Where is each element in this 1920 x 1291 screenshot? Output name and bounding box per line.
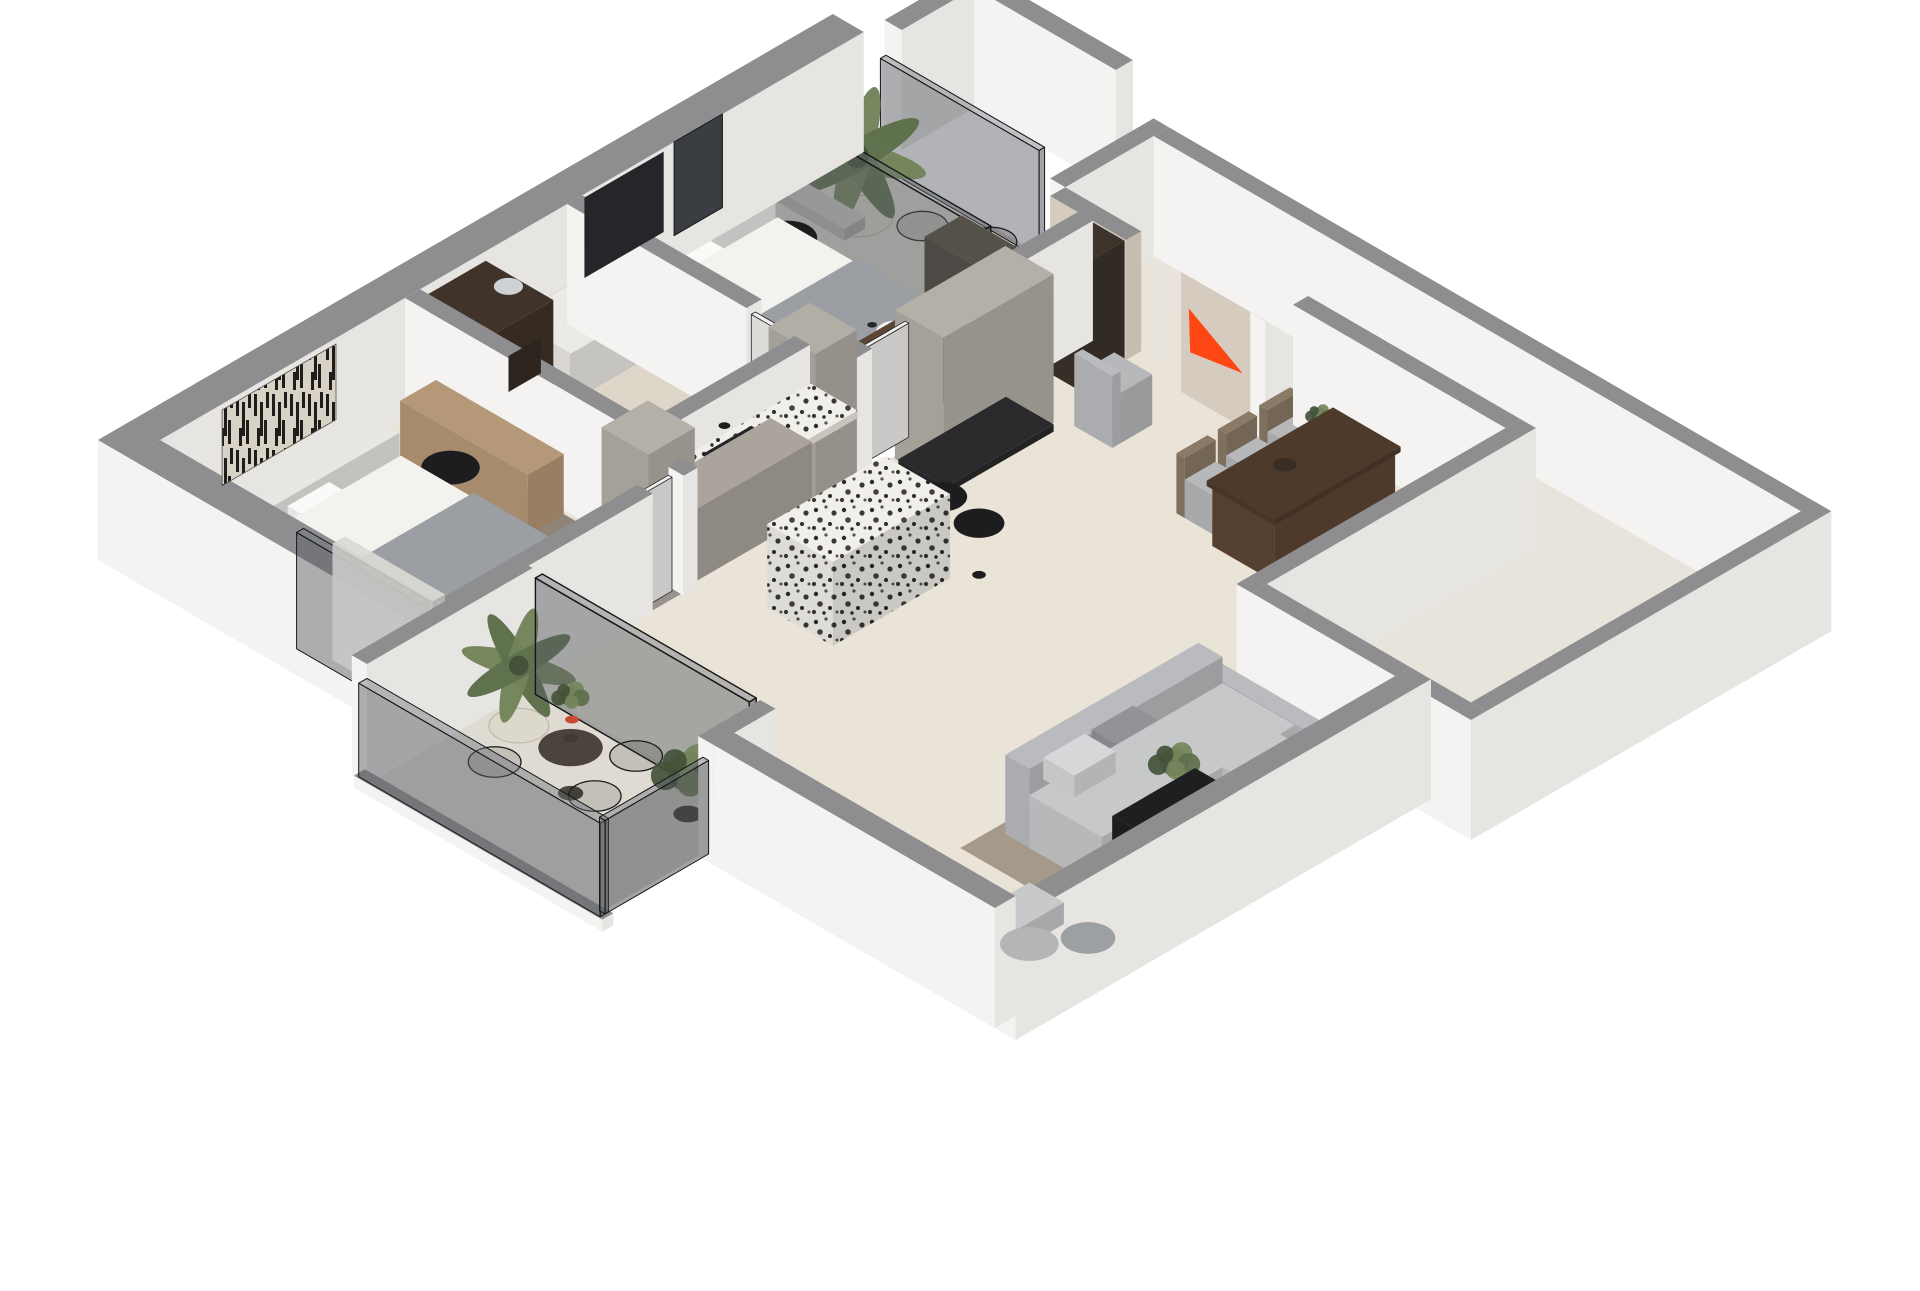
master-sink-tap	[867, 322, 877, 328]
bar-stool-2	[954, 508, 1005, 537]
wall-bedroom2-se-right	[669, 459, 698, 596]
isometric-scene	[0, 0, 1920, 1291]
kitchen-faucet	[719, 422, 731, 429]
dining-decor-tray	[1273, 458, 1296, 472]
floor-plan-render	[0, 0, 1920, 1291]
floor-cushion-1	[1000, 927, 1059, 961]
bath-shower-head	[494, 278, 523, 295]
bar-stool-2-leg	[972, 571, 986, 579]
floor-cushion-2	[1061, 922, 1116, 954]
balcony-red-flower	[565, 716, 579, 724]
